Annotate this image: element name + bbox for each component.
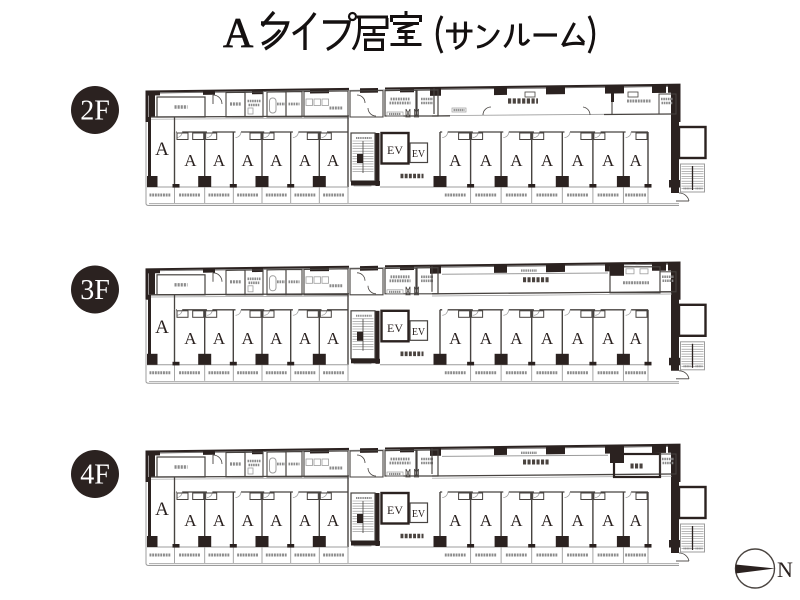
svg-text:A: A	[541, 329, 554, 348]
svg-text:A: A	[602, 511, 615, 530]
svg-text:A: A	[270, 511, 283, 530]
svg-text:A: A	[299, 329, 312, 348]
svg-text:A: A	[213, 511, 226, 530]
svg-text:A: A	[510, 511, 523, 530]
svg-text:A: A	[602, 329, 615, 348]
svg-text:A: A	[630, 151, 643, 170]
svg-text:2F: 2F	[80, 96, 110, 127]
svg-text:A: A	[449, 329, 462, 348]
svg-text:A: A	[299, 151, 312, 170]
svg-text:A: A	[571, 151, 584, 170]
svg-text:A: A	[602, 151, 615, 170]
svg-text:A: A	[184, 329, 197, 348]
svg-text:A: A	[480, 329, 493, 348]
svg-text:A: A	[571, 329, 584, 348]
svg-text:EV: EV	[387, 503, 403, 517]
svg-text:A: A	[184, 151, 197, 170]
svg-text:A: A	[213, 151, 226, 170]
svg-text:A: A	[155, 499, 169, 520]
svg-text:A: A	[241, 329, 254, 348]
svg-text:EV: EV	[412, 509, 426, 520]
svg-text:A: A	[184, 511, 197, 530]
svg-text:4F: 4F	[80, 460, 110, 491]
svg-text:A: A	[480, 151, 493, 170]
svg-text:A: A	[241, 151, 254, 170]
svg-text:EV: EV	[387, 321, 403, 335]
svg-text:A: A	[155, 139, 169, 160]
svg-text:A: A	[327, 329, 340, 348]
svg-text:N: N	[777, 557, 793, 582]
svg-text:EV: EV	[412, 327, 426, 338]
svg-text:A: A	[299, 511, 312, 530]
svg-text:A: A	[541, 511, 554, 530]
svg-text:A: A	[510, 329, 523, 348]
svg-text:A: A	[213, 329, 226, 348]
svg-text:A: A	[510, 151, 523, 170]
svg-text:3F: 3F	[80, 275, 110, 306]
svg-text:A: A	[155, 317, 169, 338]
svg-text:A: A	[223, 11, 254, 57]
svg-text:A: A	[630, 329, 643, 348]
svg-text:A: A	[449, 151, 462, 170]
svg-text:EV: EV	[387, 143, 403, 157]
svg-text:A: A	[270, 151, 283, 170]
svg-text:A: A	[480, 511, 493, 530]
svg-text:A: A	[327, 151, 340, 170]
svg-text:A: A	[241, 511, 254, 530]
svg-text:A: A	[571, 511, 584, 530]
svg-text:A: A	[630, 511, 643, 530]
svg-text:A: A	[449, 511, 462, 530]
svg-text:A: A	[270, 329, 283, 348]
svg-text:EV: EV	[412, 149, 426, 160]
svg-text:A: A	[327, 511, 340, 530]
svg-text:A: A	[541, 151, 554, 170]
